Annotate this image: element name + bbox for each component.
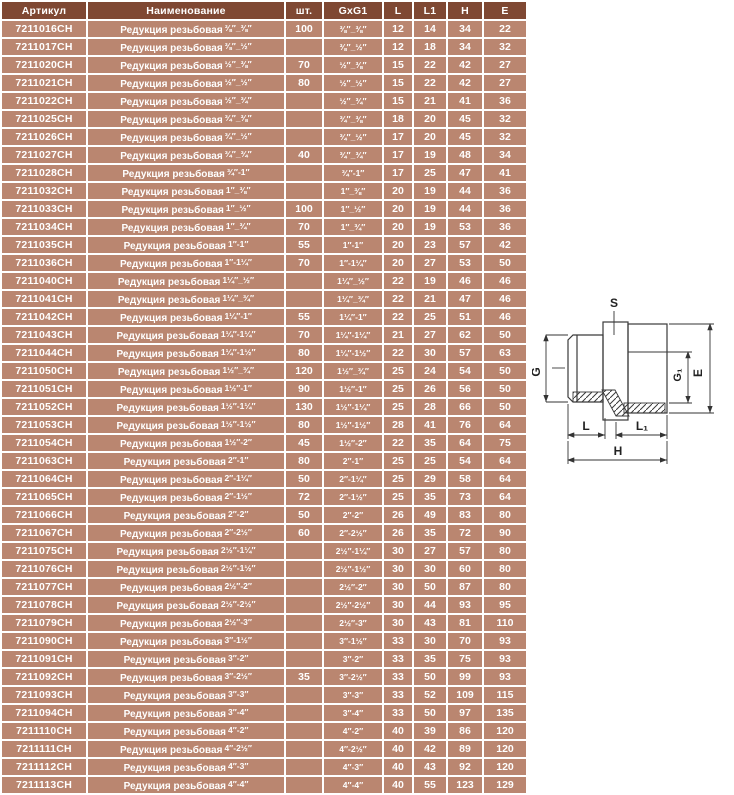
name-cell: Редукция резьбовая1″_½″ (88, 201, 284, 217)
qty-cell: 55 (286, 309, 322, 325)
e-cell: 50 (484, 255, 526, 271)
l1-cell: 25 (414, 309, 446, 325)
e-cell: 50 (484, 327, 526, 343)
e-cell: 64 (484, 471, 526, 487)
article-cell: 7211022CH (2, 93, 86, 109)
name-cell: Редукция резьбовая2″-1¼″ (88, 471, 284, 487)
name-cell: Редукция резьбовая½″_⅜″ (88, 57, 284, 73)
product-name-text: Редукция резьбовая (124, 763, 226, 774)
qty-cell (286, 705, 322, 721)
name-cell: Редукция резьбовая¾″_¾″ (88, 147, 284, 163)
e-cell: 27 (484, 57, 526, 73)
name-cell: Редукция резьбовая2½″-2½″ (88, 597, 284, 613)
article-cell: 7211017CH (2, 39, 86, 55)
product-name-text: Редукция резьбовая (121, 223, 223, 234)
article-cell: 7211079CH (2, 615, 86, 631)
e-cell: 50 (484, 399, 526, 415)
product-size-text: 1″-1″ (228, 239, 248, 249)
size-cell: 1″-1¼″ (324, 255, 382, 271)
e-cell: 110 (484, 615, 526, 631)
product-size-text: ½″_¾″ (225, 95, 252, 105)
product-name-text: Редукция резьбовая (120, 619, 222, 630)
product-name-text: Редукция резьбовая (116, 565, 218, 576)
product-size-text: 3″-2″ (228, 653, 248, 663)
size-cell: 1½″-1¼″ (324, 399, 382, 415)
l1-cell: 35 (414, 435, 446, 451)
product-size-text: ⅜″_⅜″ (225, 23, 252, 33)
qty-cell: 120 (286, 363, 322, 379)
article-cell: 7211092CH (2, 669, 86, 685)
qty-cell: 45 (286, 435, 322, 451)
name-cell: Редукция резьбовая2″-2½″ (88, 525, 284, 541)
article-cell: 7211054CH (2, 435, 86, 451)
e-cell: 95 (484, 597, 526, 613)
size-cell: 1″_½″ (324, 201, 382, 217)
name-cell: Редукция резьбовая2½″-1¼″ (88, 543, 284, 559)
e-cell: 27 (484, 75, 526, 91)
size-cell: ⅜″_½″ (324, 39, 382, 55)
table-row: 7211064CHРедукция резьбовая2″-1¼″502″-1¼… (2, 471, 526, 487)
e-cell: 80 (484, 579, 526, 595)
qty-cell: 70 (286, 57, 322, 73)
article-cell: 7211090CH (2, 633, 86, 649)
product-name-text: Редукция резьбовая (120, 115, 222, 126)
l-cell: 25 (384, 489, 412, 505)
l-cell: 20 (384, 255, 412, 271)
name-cell: Редукция резьбовая¾″_⅜″ (88, 111, 284, 127)
l1-cell: 35 (414, 489, 446, 505)
h-cell: 46 (448, 273, 482, 289)
header-article: Артикул (2, 2, 86, 19)
size-cell: ¾″_⅜″ (324, 111, 382, 127)
e-cell: 120 (484, 759, 526, 775)
table-row: 7211091CHРедукция резьбовая3″-2″3″-2″333… (2, 651, 526, 667)
size-cell: 2½″-3″ (324, 615, 382, 631)
table-row: 7211017CHРедукция резьбовая⅜″_½″⅜″_½″121… (2, 39, 526, 55)
h-cell: 41 (448, 93, 482, 109)
size-cell: 3″-4″ (324, 705, 382, 721)
h-cell: 53 (448, 255, 482, 271)
name-cell: Редукция резьбовая1½″_¾″ (88, 363, 284, 379)
e-cell: 36 (484, 219, 526, 235)
qty-cell: 130 (286, 399, 322, 415)
table-row: 7211078CHРедукция резьбовая2½″-2½″2½″-2½… (2, 597, 526, 613)
l-cell: 40 (384, 741, 412, 757)
l1-cell: 27 (414, 543, 446, 559)
l-cell: 25 (384, 381, 412, 397)
product-size-text: 2½″-1¼″ (221, 545, 256, 555)
l1-cell: 20 (414, 111, 446, 127)
product-size-text: 1¼″-1″ (224, 311, 252, 321)
size-cell: 3″-1½″ (324, 633, 382, 649)
size-cell: 1¼″_½″ (324, 273, 382, 289)
dim-label-g: G (532, 367, 543, 376)
article-cell: 7211041CH (2, 291, 86, 307)
l-cell: 25 (384, 399, 412, 415)
h-cell: 97 (448, 705, 482, 721)
size-cell: 3″-3″ (324, 687, 382, 703)
l1-cell: 41 (414, 417, 446, 433)
l-cell: 17 (384, 165, 412, 181)
qty-cell: 50 (286, 471, 322, 487)
dim-label-l1: L₁ (636, 419, 648, 433)
header-l: L (384, 2, 412, 19)
h-cell: 44 (448, 183, 482, 199)
article-cell: 7211077CH (2, 579, 86, 595)
qty-cell: 55 (286, 237, 322, 253)
l1-cell: 24 (414, 363, 446, 379)
e-cell: 46 (484, 291, 526, 307)
product-size-text: 1½″_¾″ (222, 365, 254, 375)
qty-cell: 80 (286, 417, 322, 433)
e-cell: 64 (484, 489, 526, 505)
table-row: 7211016CHРедукция резьбовая⅜″_⅜″100⅜″_⅜″… (2, 21, 526, 37)
l1-cell: 44 (414, 597, 446, 613)
qty-cell: 90 (286, 381, 322, 397)
l-cell: 22 (384, 345, 412, 361)
product-name-text: Редукция резьбовая (120, 97, 222, 108)
name-cell: Редукция резьбовая4″-2½″ (88, 741, 284, 757)
size-cell: 1¼″-1¼″ (324, 327, 382, 343)
product-name-text: Редукция резьбовая (124, 511, 226, 522)
product-size-text: 1″_⅜″ (226, 185, 251, 195)
name-cell: Редукция резьбовая1″-1″ (88, 237, 284, 253)
table-row: 7211054CHРедукция резьбовая1½″-2″451½″-2… (2, 435, 526, 451)
size-cell: ½″_¾″ (324, 93, 382, 109)
h-cell: 64 (448, 435, 482, 451)
l1-cell: 21 (414, 291, 446, 307)
l1-cell: 27 (414, 255, 446, 271)
e-cell: 120 (484, 723, 526, 739)
table-row: 7211110CHРедукция резьбовая4″-2″4″-2″403… (2, 723, 526, 739)
product-name-text: Редукция резьбовая (116, 547, 218, 558)
l1-cell: 26 (414, 381, 446, 397)
size-cell: 2″-1½″ (324, 489, 382, 505)
product-size-text: 2″-1¼″ (224, 473, 252, 483)
name-cell: Редукция резьбовая½″_¾″ (88, 93, 284, 109)
product-name-text: Редукция резьбовая (120, 133, 222, 144)
table-row: 7211092CHРедукция резьбовая3″-2½″353″-2½… (2, 669, 526, 685)
dim-label-l: L (582, 419, 589, 433)
header-qty: шт. (286, 2, 322, 19)
qty-cell (286, 687, 322, 703)
size-cell: 2″-1″ (324, 453, 382, 469)
l-cell: 40 (384, 759, 412, 775)
article-cell: 7211091CH (2, 651, 86, 667)
header-h: H (448, 2, 482, 19)
name-cell: Редукция резьбовая2½″-1½″ (88, 561, 284, 577)
article-cell: 7211065CH (2, 489, 86, 505)
table-row: 7211090CHРедукция резьбовая3″-1½″3″-1½″3… (2, 633, 526, 649)
h-cell: 66 (448, 399, 482, 415)
qty-cell: 100 (286, 201, 322, 217)
l-cell: 22 (384, 435, 412, 451)
size-cell: 1½″-1″ (324, 381, 382, 397)
table-row: 7211052CHРедукция резьбовая1½″-1¼″1301½″… (2, 399, 526, 415)
e-cell: 93 (484, 633, 526, 649)
product-name-text: Редукция резьбовая (120, 583, 222, 594)
size-cell: 4″-2½″ (324, 741, 382, 757)
l-cell: 33 (384, 669, 412, 685)
table-row: 7211028CHРедукция резьбовая¾″-1″¾″-1″172… (2, 165, 526, 181)
product-name-text: Редукция резьбовая (124, 457, 226, 468)
l1-cell: 49 (414, 507, 446, 523)
l1-cell: 50 (414, 705, 446, 721)
product-name-text: Редукция резьбовая (120, 151, 222, 162)
h-cell: 109 (448, 687, 482, 703)
article-cell: 7211076CH (2, 561, 86, 577)
size-cell: 2½″-2½″ (324, 597, 382, 613)
product-name-text: Редукция резьбовая (120, 439, 222, 450)
e-cell: 135 (484, 705, 526, 721)
qty-cell (286, 111, 322, 127)
name-cell: Редукция резьбовая⅜″_⅜″ (88, 21, 284, 37)
size-cell: ⅜″_⅜″ (324, 21, 382, 37)
e-cell: 42 (484, 237, 526, 253)
dim-label-g1: G₁ (672, 368, 684, 382)
header-e: E (484, 2, 526, 19)
table-row: 7211113CHРедукция резьбовая4″-4″4″-4″405… (2, 777, 526, 793)
qty-cell: 60 (286, 525, 322, 541)
qty-cell (286, 759, 322, 775)
article-cell: 7211052CH (2, 399, 86, 415)
dim-label-e: E (691, 369, 705, 377)
name-cell: Редукция резьбовая1″_¾″ (88, 219, 284, 235)
product-size-text: 1½″-2″ (224, 437, 252, 447)
qty-cell: 35 (286, 669, 322, 685)
e-cell: 93 (484, 651, 526, 667)
table-row: 7211063CHРедукция резьбовая2″-1″802″-1″2… (2, 453, 526, 469)
size-cell: 1″-1″ (324, 237, 382, 253)
h-cell: 76 (448, 417, 482, 433)
qty-cell: 50 (286, 507, 322, 523)
table-row: 7211036CHРедукция резьбовая1″-1¼″701″-1¼… (2, 255, 526, 271)
qty-cell (286, 93, 322, 109)
name-cell: Редукция резьбовая¾″_½″ (88, 129, 284, 145)
h-cell: 45 (448, 129, 482, 145)
size-cell: 4″-4″ (324, 777, 382, 793)
header-l1: L1 (414, 2, 446, 19)
l-cell: 30 (384, 597, 412, 613)
size-cell: 4″-3″ (324, 759, 382, 775)
size-cell: 1½″-1½″ (324, 417, 382, 433)
name-cell: Редукция резьбовая1½″-1½″ (88, 417, 284, 433)
l-cell: 25 (384, 471, 412, 487)
article-cell: 7211027CH (2, 147, 86, 163)
qty-cell: 72 (286, 489, 322, 505)
h-cell: 86 (448, 723, 482, 739)
l-cell: 12 (384, 21, 412, 37)
header-name: Наименование (88, 2, 284, 19)
product-size-text: 1¼″-1½″ (221, 347, 256, 357)
qty-cell (286, 741, 322, 757)
product-name-text: Редукция резьбовая (121, 187, 223, 198)
dim-label-h: H (614, 444, 623, 458)
product-size-text: 1½″-1″ (224, 383, 252, 393)
qty-cell (286, 129, 322, 145)
size-cell: 2″-2″ (324, 507, 382, 523)
product-name-text: Редукция резьбовая (118, 367, 220, 378)
name-cell: Редукция резьбовая¾″-1″ (88, 165, 284, 181)
size-cell: 1″_⅜″ (324, 183, 382, 199)
l-cell: 40 (384, 723, 412, 739)
product-size-text: 2″-2″ (228, 509, 248, 519)
size-cell: 4″-2″ (324, 723, 382, 739)
product-size-text: ¾″-1″ (227, 167, 250, 177)
name-cell: Редукция резьбовая1½″-2″ (88, 435, 284, 451)
e-cell: 80 (484, 507, 526, 523)
table-row: 7211040CHРедукция резьбовая1¼″_½″1¼″_½″2… (2, 273, 526, 289)
l-cell: 30 (384, 543, 412, 559)
table-row: 7211051CHРедукция резьбовая1½″-1″901½″-1… (2, 381, 526, 397)
product-size-text: 1″_½″ (226, 203, 251, 213)
l1-cell: 19 (414, 201, 446, 217)
h-cell: 72 (448, 525, 482, 541)
article-cell: 7211078CH (2, 597, 86, 613)
qty-cell: 70 (286, 327, 322, 343)
product-name-text: Редукция резьбовая (124, 691, 226, 702)
l1-cell: 30 (414, 345, 446, 361)
h-cell: 89 (448, 741, 482, 757)
l-cell: 30 (384, 615, 412, 631)
product-size-text: 1″_¾″ (226, 221, 251, 231)
table-row: 7211034CHРедукция резьбовая1″_¾″701″_¾″2… (2, 219, 526, 235)
product-name-text: Редукция резьбовая (120, 313, 222, 324)
e-cell: 80 (484, 543, 526, 559)
h-cell: 60 (448, 561, 482, 577)
size-cell: 2″-1¼″ (324, 471, 382, 487)
h-cell: 57 (448, 543, 482, 559)
product-name-text: Редукция резьбовая (124, 241, 226, 252)
product-name-text: Редукция резьбовая (121, 205, 223, 216)
l1-cell: 55 (414, 777, 446, 793)
l-cell: 22 (384, 309, 412, 325)
e-cell: 129 (484, 777, 526, 793)
size-cell: 3″-2½″ (324, 669, 382, 685)
e-cell: 46 (484, 273, 526, 289)
e-cell: 32 (484, 39, 526, 55)
l1-cell: 27 (414, 327, 446, 343)
e-cell: 64 (484, 417, 526, 433)
product-name-text: Редукция резьбовая (120, 637, 222, 648)
name-cell: Редукция резьбовая3″-4″ (88, 705, 284, 721)
size-cell: ½″_½″ (324, 75, 382, 91)
product-name-text: Редукция резьбовая (116, 421, 218, 432)
table-row: 7211111CHРедукция резьбовая4″-2½″4″-2½″4… (2, 741, 526, 757)
h-cell: 123 (448, 777, 482, 793)
article-cell: 7211040CH (2, 273, 86, 289)
l1-cell: 14 (414, 21, 446, 37)
qty-cell: 40 (286, 147, 322, 163)
size-cell: 1¼″_¾″ (324, 291, 382, 307)
e-cell: 36 (484, 201, 526, 217)
l-cell: 17 (384, 129, 412, 145)
table-row: 7211020CHРедукция резьбовая½″_⅜″70½″_⅜″1… (2, 57, 526, 73)
catalog-page: { "table": { "name_prefix": "Редукция ре… (0, 0, 734, 795)
article-cell: 7211066CH (2, 507, 86, 523)
name-cell: Редукция резьбовая1½″-1¼″ (88, 399, 284, 415)
article-cell: 7211051CH (2, 381, 86, 397)
h-cell: 42 (448, 57, 482, 73)
product-name-text: Редукция резьбовая (120, 43, 222, 54)
table-row: 7211075CHРедукция резьбовая2½″-1¼″2½″-1¼… (2, 543, 526, 559)
e-cell: 41 (484, 165, 526, 181)
qty-cell (286, 39, 322, 55)
e-cell: 36 (484, 183, 526, 199)
product-size-text: ½″_½″ (225, 77, 252, 87)
size-cell: 2½″-2″ (324, 579, 382, 595)
e-cell: 75 (484, 435, 526, 451)
qty-cell: 80 (286, 453, 322, 469)
h-cell: 53 (448, 219, 482, 235)
h-cell: 45 (448, 111, 482, 127)
e-cell: 50 (484, 363, 526, 379)
product-name-text: Редукция резьбовая (120, 79, 222, 90)
table-row: 7211043CHРедукция резьбовая1¼″-1¼″701¼″-… (2, 327, 526, 343)
product-size-text: 2½″-2½″ (221, 599, 256, 609)
dimension-lines (546, 311, 714, 464)
e-cell: 80 (484, 561, 526, 577)
table-row: 7211066CHРедукция резьбовая2″-2″502″-2″2… (2, 507, 526, 523)
l-cell: 26 (384, 525, 412, 541)
table-row: 7211022CHРедукция резьбовая½″_¾″½″_¾″152… (2, 93, 526, 109)
table-body: 7211016CHРедукция резьбовая⅜″_⅜″100⅜″_⅜″… (2, 21, 526, 793)
article-cell: 7211035CH (2, 237, 86, 253)
article-cell: 7211064CH (2, 471, 86, 487)
name-cell: Редукция резьбовая⅜″_½″ (88, 39, 284, 55)
article-cell: 7211063CH (2, 453, 86, 469)
qty-cell (286, 183, 322, 199)
l-cell: 33 (384, 705, 412, 721)
qty-cell (286, 615, 322, 631)
name-cell: Редукция резьбовая2½″-3″ (88, 615, 284, 631)
e-cell: 34 (484, 147, 526, 163)
h-cell: 56 (448, 381, 482, 397)
product-size-text: 4″-4″ (228, 779, 248, 789)
product-size-text: 4″-2½″ (224, 743, 252, 753)
e-cell: 120 (484, 741, 526, 757)
article-cell: 7211094CH (2, 705, 86, 721)
name-cell: Редукция резьбовая1¼″-1½″ (88, 345, 284, 361)
name-cell: Редукция резьбовая2″-1″ (88, 453, 284, 469)
product-size-text: 1½″-1½″ (221, 419, 256, 429)
l1-cell: 35 (414, 525, 446, 541)
l1-cell: 43 (414, 615, 446, 631)
l-cell: 25 (384, 453, 412, 469)
qty-cell (286, 723, 322, 739)
product-name-text: Редукция резьбовая (124, 709, 226, 720)
l-cell: 33 (384, 633, 412, 649)
e-cell: 36 (484, 93, 526, 109)
article-cell: 7211026CH (2, 129, 86, 145)
qty-cell: 70 (286, 255, 322, 271)
l1-cell: 23 (414, 237, 446, 253)
product-size-text: ⅜″_½″ (225, 41, 252, 51)
table-row: 7211076CHРедукция резьбовая2½″-1½″2½″-1½… (2, 561, 526, 577)
table-row: 7211094CHРедукция резьбовая3″-4″3″-4″335… (2, 705, 526, 721)
e-cell: 32 (484, 111, 526, 127)
e-cell: 115 (484, 687, 526, 703)
h-cell: 34 (448, 39, 482, 55)
product-size-text: 3″-3″ (228, 689, 248, 699)
table-row: 7211067CHРедукция резьбовая2″-2½″602″-2½… (2, 525, 526, 541)
l1-cell: 18 (414, 39, 446, 55)
name-cell: Редукция резьбовая4″-2″ (88, 723, 284, 739)
l-cell: 21 (384, 327, 412, 343)
article-cell: 7211112CH (2, 759, 86, 775)
product-size-text: 2″-1½″ (224, 491, 252, 501)
l1-cell: 42 (414, 741, 446, 757)
